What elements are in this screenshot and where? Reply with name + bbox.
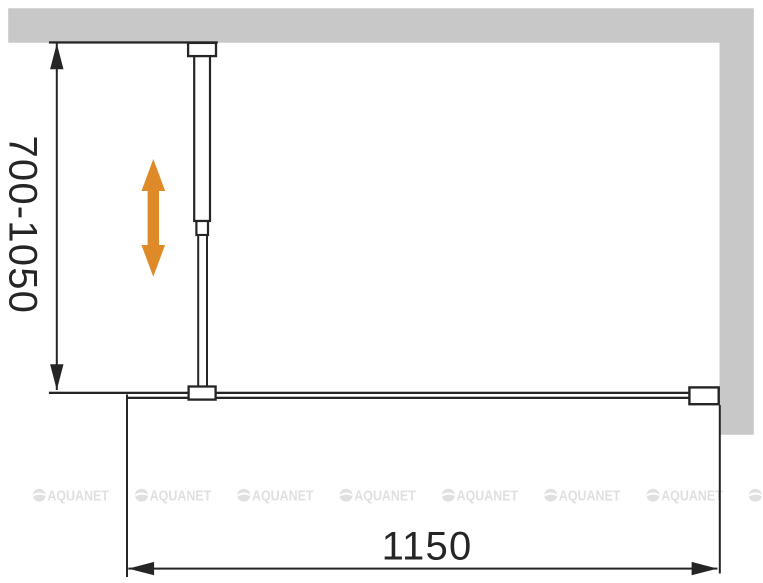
svg-text:AQUANET: AQUANET <box>47 488 109 505</box>
svg-text:700-1050: 700-1050 <box>1 135 45 314</box>
svg-text:1150: 1150 <box>382 525 473 569</box>
